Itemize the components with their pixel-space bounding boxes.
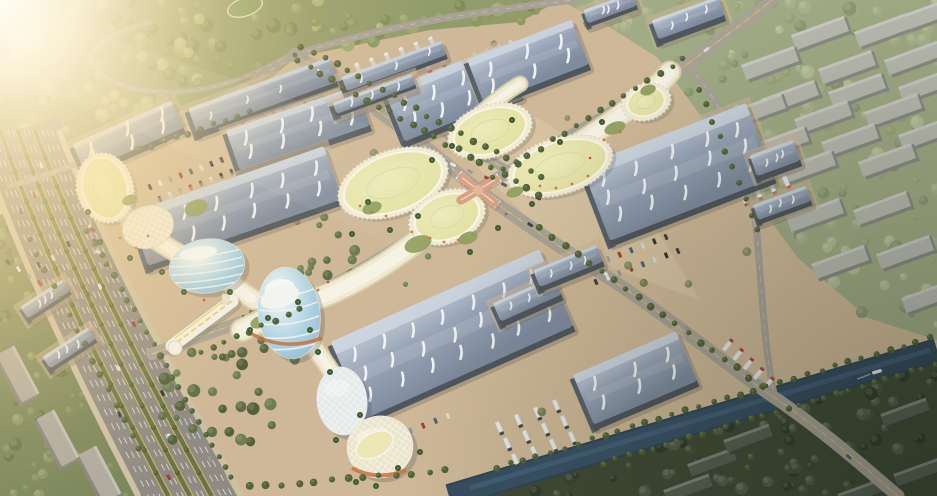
rendering-stage: Aerial rendering of an exhibition and tr… [0,0,937,496]
aerial-scene [0,0,937,496]
vignette-shadow [0,0,937,496]
